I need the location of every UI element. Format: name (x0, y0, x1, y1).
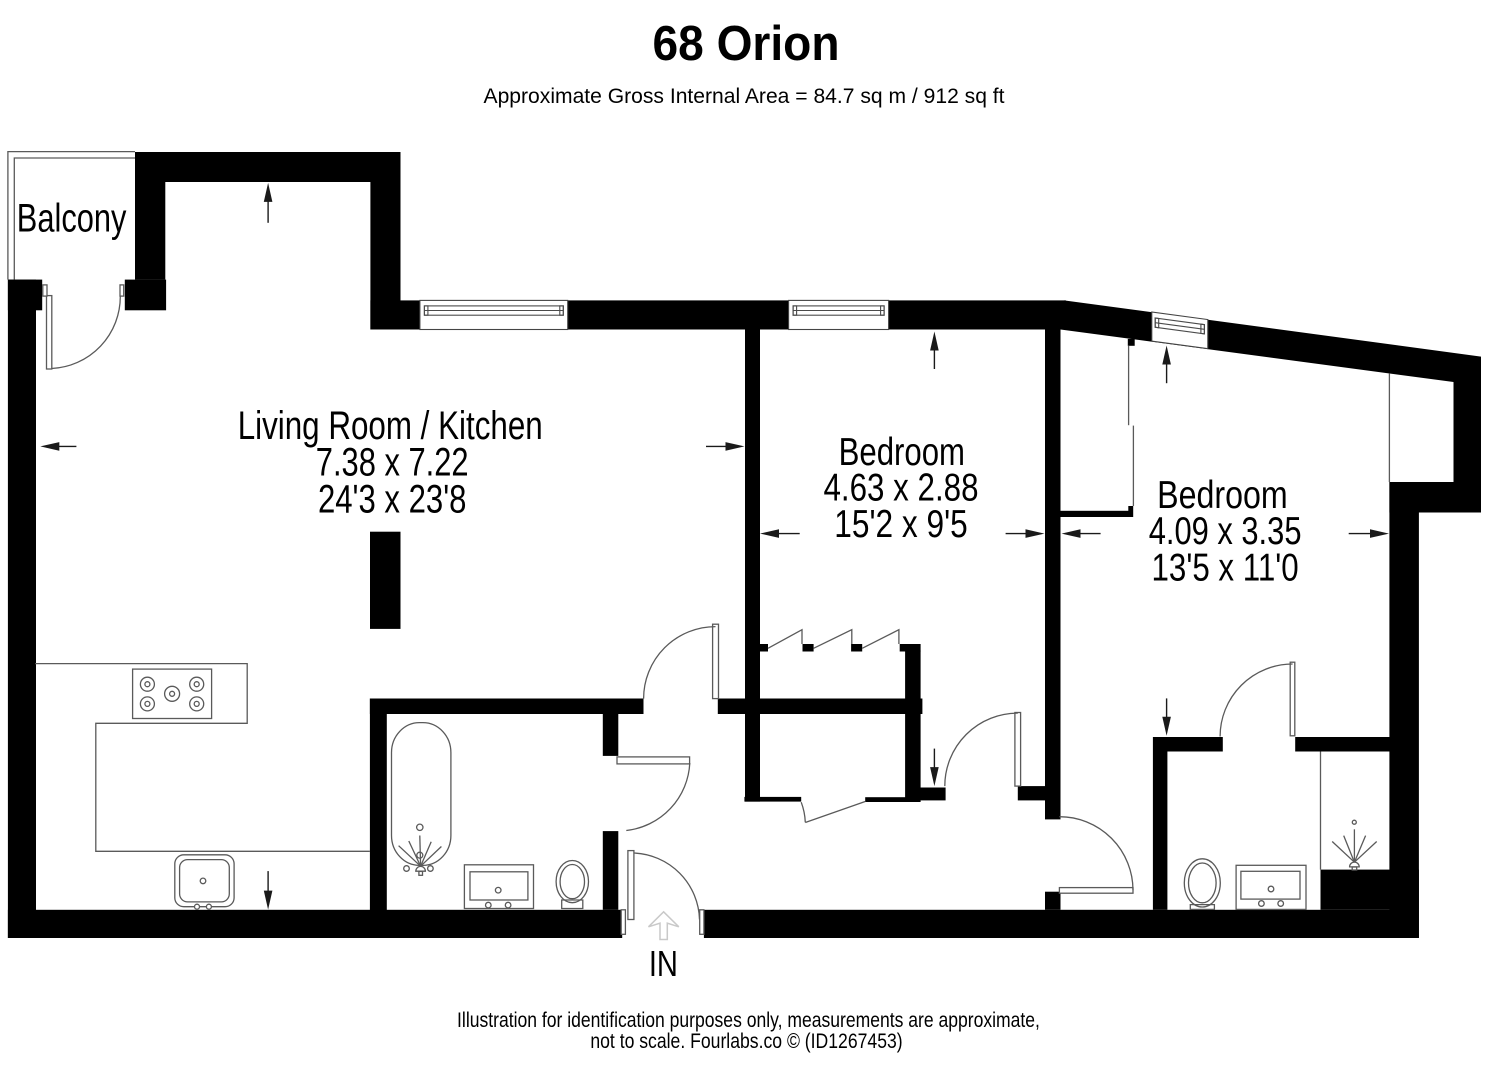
svg-text:13'5 x 11'0: 13'5 x 11'0 (1152, 546, 1299, 589)
svg-text:not to scale. Fourlabs.co © (I: not to scale. Fourlabs.co © (ID1267453) (590, 1029, 902, 1053)
svg-text:IN: IN (649, 943, 678, 984)
svg-text:Balcony: Balcony (17, 197, 127, 241)
svg-text:15'2 x 9'5: 15'2 x 9'5 (834, 503, 967, 546)
svg-text:Approximate Gross Internal Are: Approximate Gross Internal Area = 84.7 s… (484, 84, 1005, 108)
svg-text:24'3 x 23'8: 24'3 x 23'8 (318, 477, 467, 521)
svg-text:68 Orion: 68 Orion (653, 17, 840, 71)
